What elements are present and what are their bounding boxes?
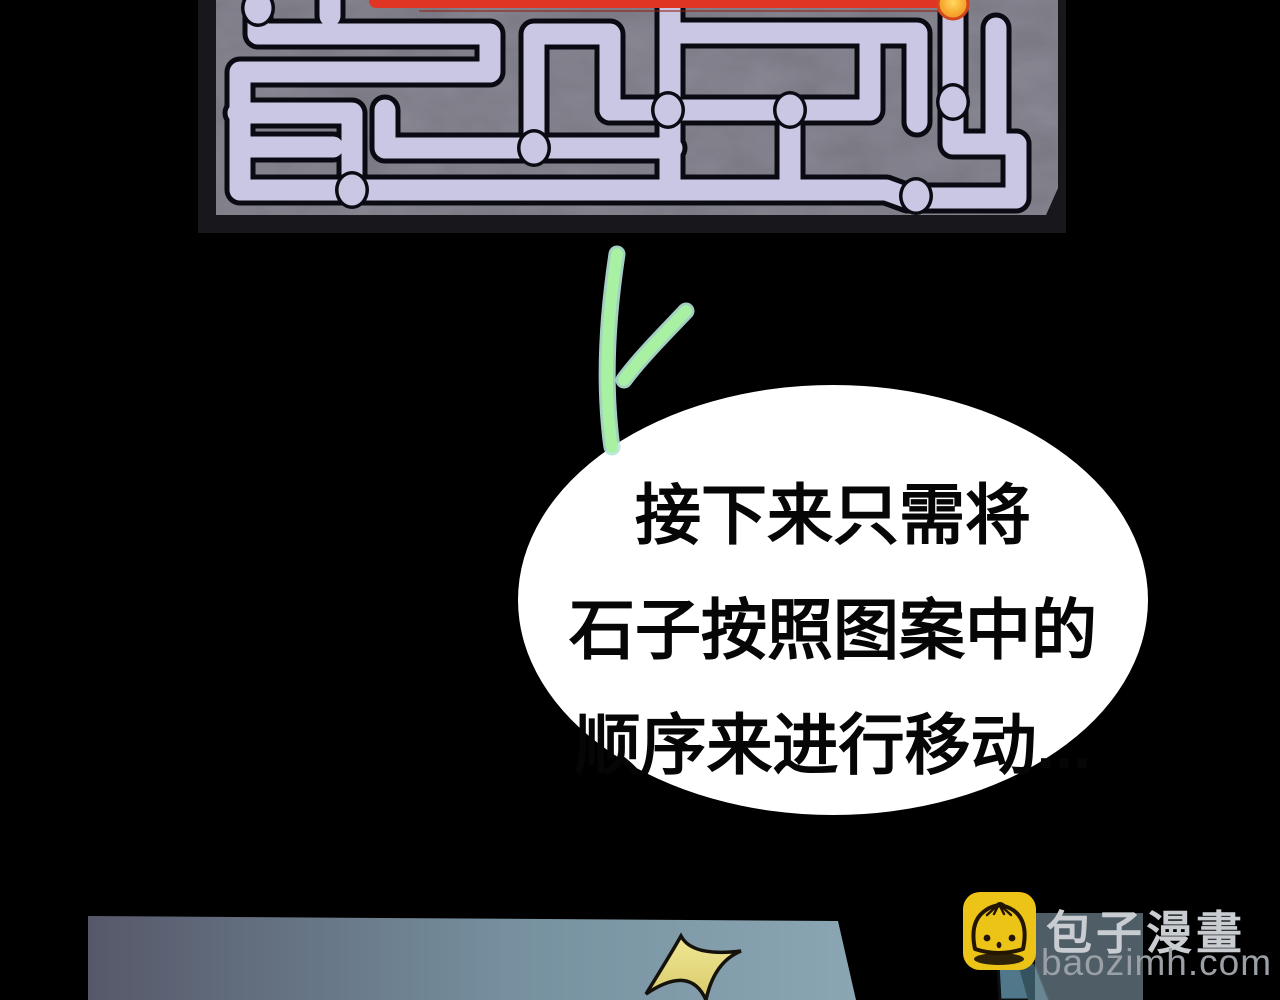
baozi-logo-icon	[963, 892, 1036, 970]
bun-eye-left	[984, 935, 991, 942]
watermark-backdrop	[1035, 913, 1143, 1000]
bottom-panel	[88, 916, 856, 1000]
comic-artwork	[0, 0, 1280, 1000]
bun-mouth	[997, 942, 1002, 948]
route-end-dot	[938, 0, 968, 19]
watermark	[963, 892, 1143, 1000]
comic-page: 接下来只需将 石子按照图案中的 顺序来进行移动... 包子漫畫 baozimh.…	[0, 0, 1280, 1000]
stone-tablet-panel	[198, 0, 1066, 233]
bun-eye-right	[1009, 935, 1016, 942]
rune-stroke-branch	[624, 311, 686, 380]
